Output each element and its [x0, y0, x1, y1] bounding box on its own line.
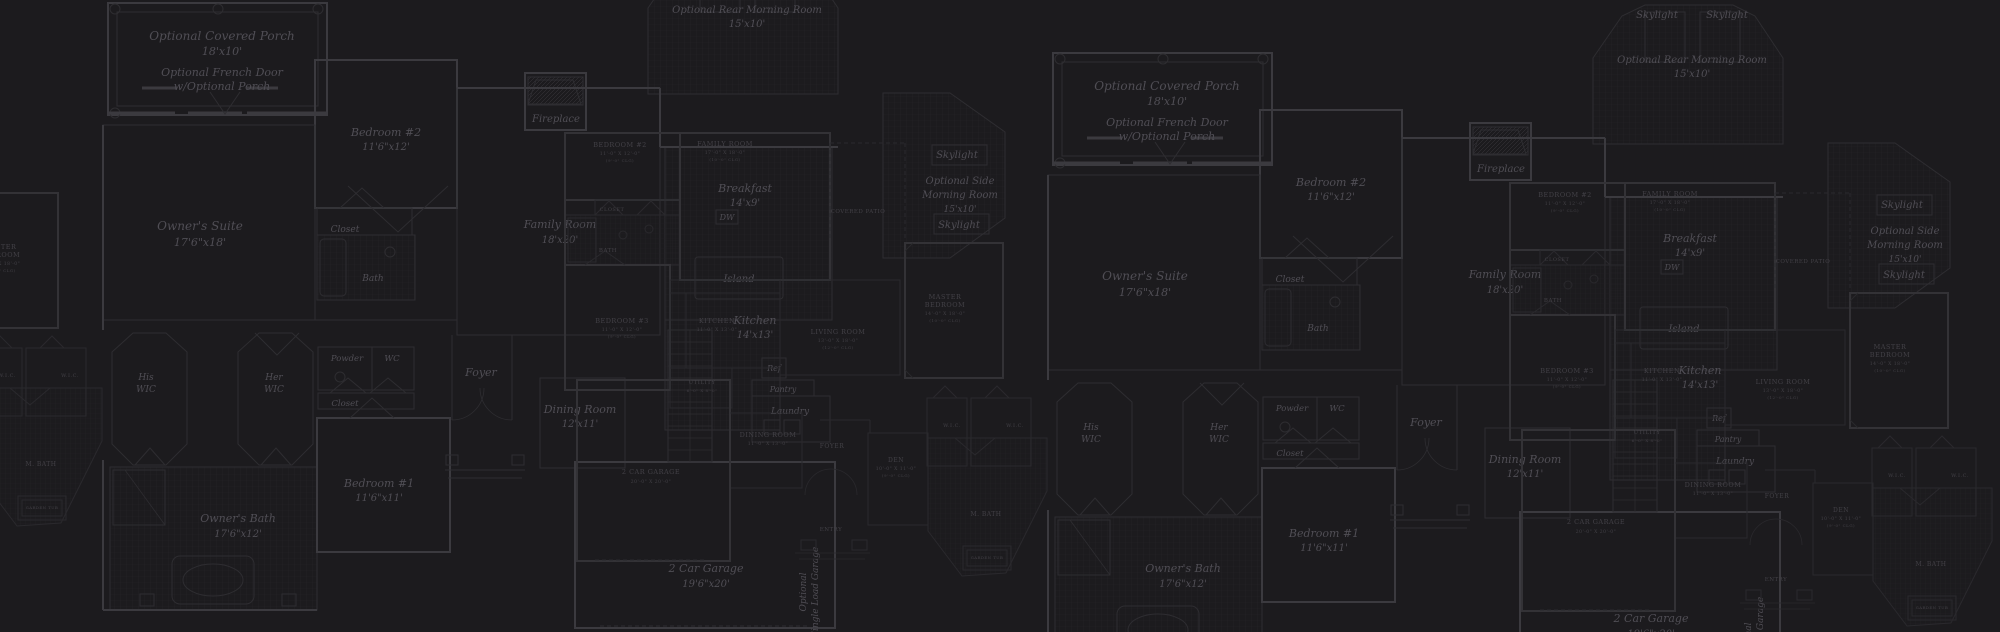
door-swing — [1285, 238, 1329, 258]
room-label-skylight: Skylight — [1883, 270, 1926, 281]
room-wall — [1797, 590, 1812, 600]
room-label-w-optional-porch: w/Optional Porch — [1119, 130, 1215, 143]
room-wall — [575, 462, 835, 628]
floorplan-b-left-edge: BEDROOM #211'-0" X 12'-0"(9'-0" CLG)FAMI… — [0, 83, 102, 526]
room-label-w-i-c: W.I.C. — [1888, 473, 1906, 479]
room-label-breakfast: Breakfast — [1662, 232, 1717, 245]
room-label-15-x10: 15'x10' — [1674, 69, 1711, 80]
room-label-m-bath: M. BATH — [25, 461, 56, 468]
door-swing — [1878, 436, 1902, 448]
room-label-20-0-x-20-0: 20'-0" X 20'-0" — [1576, 529, 1616, 535]
tiled-floor — [665, 147, 832, 320]
room-label-11-0-x-13-0: 11'-0" X 13'-0" — [1642, 377, 1682, 383]
room-label-fireplace: Fireplace — [1476, 164, 1525, 175]
room-label-14-x9: 14'x9' — [730, 198, 760, 209]
room-label-bedroom-2: BEDROOM #2 — [1538, 191, 1592, 199]
room-label-owner-s-suite: Owner's Suite — [157, 219, 243, 233]
room-label-master: MASTER — [0, 243, 17, 251]
room-label-family-room: FAMILY ROOM — [697, 140, 753, 148]
room-label-2-car-garage: 2 Car Garage — [668, 562, 744, 575]
room-label-bath: Bath — [1306, 324, 1328, 334]
door-swing — [1315, 428, 1351, 443]
room-label-garden-tub: GARDEN TUB — [971, 555, 1004, 560]
room-label-her: Her — [264, 373, 283, 383]
room-label-skylight: Skylight — [1706, 10, 1749, 21]
door-arc — [480, 388, 512, 420]
room-label-her: Her — [1209, 423, 1228, 433]
room-label-bath: Bath — [361, 274, 383, 284]
wall-line — [1850, 420, 1858, 428]
room-wall — [1473, 127, 1528, 155]
room-wall — [868, 433, 928, 525]
room-label-2-car-garage: 2 Car Garage — [1613, 612, 1689, 625]
room-label-11-0-x-13-0: 11'-0" X 13'-0" — [1693, 491, 1733, 497]
fixture — [110, 4, 120, 14]
room-label-wic: WIC — [264, 385, 284, 395]
room-label-laundry: Laundry — [1715, 457, 1755, 467]
room-wall — [528, 77, 583, 105]
room-wall — [1402, 138, 1605, 385]
room-label-optional-side: Optional Side — [926, 176, 995, 187]
door-arc — [452, 388, 484, 420]
room-label-9-0-clg: (9'-0" CLG) — [608, 334, 636, 339]
room-label-9-0-clg: (9'-0" CLG) — [1553, 384, 1581, 389]
room-label-dining-room: Dining Room — [1488, 453, 1562, 466]
room-label-optional-covered-porch: Optional Covered Porch — [149, 29, 295, 43]
room-label-bath: BATH — [1544, 298, 1562, 304]
floorplan-a-right: Optional Covered Porch18'x10'Optional Fr… — [1048, 5, 1950, 632]
room-label-12-0-clg: (12'-0" CLG) — [1767, 395, 1798, 400]
fixture — [1055, 54, 1065, 64]
door-swing — [1200, 383, 1244, 405]
room-label-15-x10: 15'x10' — [729, 19, 766, 30]
room-wall — [905, 243, 1003, 378]
room-label-optional-rear-morning-room: Optional Rear Morning Room — [672, 5, 822, 16]
room-label-9-0-clg: (9'-0" CLG) — [606, 158, 634, 163]
room-label-covered-patio: COVERED PATIO — [1776, 259, 1831, 265]
room-label-2-car-garage: 2 CAR GARAGE — [1567, 518, 1625, 526]
room-label-10-0-clg: (10'-0" CLG) — [709, 157, 740, 162]
room-label-14-0-x-18-0: 14'-0" X 18'-0" — [925, 311, 965, 317]
room-label-garden-tub: GARDEN TUB — [1916, 605, 1949, 610]
room-wall — [0, 193, 58, 328]
room-label-powder: Powder — [330, 354, 364, 364]
room-label-11-0-x-13-0: 11'-0" X 13'-0" — [697, 327, 737, 333]
room-label-2-car-garage: 2 CAR GARAGE — [622, 468, 680, 476]
room-label-dw: DW — [1664, 263, 1680, 272]
room-label-foyer: FOYER — [820, 443, 844, 450]
room-label-bedroom: BEDROOM — [925, 301, 965, 309]
tiled-floor — [1610, 197, 1777, 370]
room-label-w-i-c: W.I.C. — [1951, 473, 1969, 479]
room-wall — [1813, 483, 1873, 575]
room-label-bedroom-2: Bedroom #2 — [350, 126, 421, 139]
room-label-powder: Powder — [1275, 404, 1309, 414]
room-label-17-0-x-18-0: 17'-0" X 18'-0" — [705, 150, 745, 156]
room-label-w-i-c: W.I.C. — [943, 423, 961, 429]
room-label-kitchen: Kitchen — [733, 314, 777, 327]
room-label-11-0-x-12-0: 11'-0" X 12'-0" — [600, 151, 640, 157]
tiled-floor — [317, 235, 415, 300]
room-label-utility: UTILITY — [688, 380, 715, 386]
room-label-bedroom-2: Bedroom #2 — [1295, 176, 1366, 189]
room-label-optional-french-door: Optional French Door — [161, 66, 284, 79]
room-label-entry: ENTRY — [1765, 577, 1788, 583]
floorplan-a-left: Optional Covered Porch18'x10'Optional Fr… — [103, 0, 1005, 632]
room-label-laundry: Laundry — [770, 407, 810, 417]
room-label-foyer: Foyer — [1409, 416, 1442, 429]
room-label-master: MASTER — [1874, 343, 1907, 351]
room-label-15-x10: 15'x10' — [944, 205, 977, 215]
room-label-living-room: LIVING ROOM — [811, 328, 866, 336]
room-label-12-x11: 12'x11' — [1507, 469, 1544, 480]
room-label-bath: BATH — [599, 248, 617, 254]
fixture — [335, 372, 345, 382]
room-label-20-0-x-20-0: 20'-0" X 20'-0" — [631, 479, 671, 485]
room-label-9-0-clg: (9'-0" CLG) — [882, 473, 910, 478]
room-label-bedroom-3: BEDROOM #3 — [1540, 367, 1594, 375]
room-wall — [457, 88, 660, 335]
room-label-foyer: Foyer — [464, 366, 497, 379]
room-label-covered-patio: COVERED PATIO — [831, 209, 886, 215]
room-label-w-i-c: W.I.C. — [61, 373, 79, 379]
room-wall — [112, 333, 187, 465]
room-label-skylight: Skylight — [1636, 10, 1679, 21]
tiled-floor — [565, 215, 680, 265]
room-label-closet: CLOSET — [1545, 257, 1570, 263]
room-wall — [1057, 383, 1132, 515]
room-label-optional-covered-porch: Optional Covered Porch — [1094, 79, 1240, 93]
room-label-fireplace: Fireplace — [531, 114, 580, 125]
room-label-14-x13: 14'x13' — [737, 330, 774, 341]
room-label-family-room: FAMILY ROOM — [1642, 190, 1698, 198]
room-label-w-i-c: W.I.C. — [0, 373, 16, 379]
door-swing — [210, 92, 240, 114]
room-wall — [1391, 505, 1403, 515]
room-label-wc: WC — [1329, 404, 1345, 414]
room-label-dw: DW — [719, 213, 735, 222]
door-swing — [1582, 251, 1610, 265]
room-label-11-0-x-12-0: 11'-0" X 12'-0" — [1547, 377, 1587, 383]
room-label-bedroom-2: BEDROOM #2 — [593, 141, 647, 149]
room-label-10-0-x-11-0: 10'-0" X 11'-0" — [1821, 516, 1861, 522]
door-arc — [1397, 438, 1429, 470]
room-label-bedroom: BEDROOM — [1870, 351, 1910, 359]
room-wall — [1457, 505, 1469, 515]
room-label-12-x11: 12'x11' — [562, 419, 599, 430]
room-label-morning-room: Morning Room — [921, 190, 998, 201]
room-label-wic: WIC — [136, 385, 156, 395]
room-label-m-bath: M. BATH — [970, 511, 1001, 518]
room-label-owner-s-bath: Owner's Bath — [1145, 562, 1221, 575]
room-label-optional: Optional — [799, 572, 809, 611]
room-label-den: DEN — [1833, 507, 1849, 514]
room-label-11-0-x-13-0: 11'-0" X 13'-0" — [748, 441, 788, 447]
room-label-10-0-clg: (10'-0" CLG) — [929, 318, 960, 323]
room-label-dining-room: DINING ROOM — [740, 431, 797, 439]
room-label-optional-side: Optional Side — [1871, 226, 1940, 237]
room-label-wic: WIC — [1209, 435, 1229, 445]
room-wall — [108, 3, 327, 115]
door-swing — [340, 188, 384, 208]
door-swing — [985, 386, 1009, 398]
room-wall — [1850, 293, 1948, 428]
room-label-17-6-x12: 17'6"x12' — [1159, 579, 1207, 590]
room-label-skylight: Skylight — [1881, 200, 1924, 211]
room-label-kitchen: Kitchen — [1678, 364, 1722, 377]
room-label-11-6-x12: 11'6"x12' — [1307, 192, 1355, 203]
room-label-18-x10: 18'x10' — [202, 45, 242, 58]
room-label-living-room: LIVING ROOM — [1756, 378, 1811, 386]
room-label-17-6-x18: 17'6"x18' — [174, 236, 226, 249]
room-label-11-6-x12: 11'6"x12' — [362, 142, 410, 153]
door-swing — [370, 378, 406, 393]
door-swing — [1930, 436, 1954, 448]
room-label-bedroom: BEDROOM — [0, 251, 20, 259]
room-wall — [852, 540, 867, 550]
room-label-12-0-clg: (12'-0" CLG) — [822, 345, 853, 350]
room-label-11-0-x-12-0: 11'-0" X 12'-0" — [602, 327, 642, 333]
room-label-garden-tub: GARDEN TUB — [26, 505, 59, 510]
door-swing — [0, 336, 12, 348]
room-label-pantry: Pantry — [1714, 435, 1742, 444]
room-label-9-0-clg: (9'-0" CLG) — [1551, 208, 1579, 213]
room-label-bedroom-3: BEDROOM #3 — [595, 317, 649, 325]
floorplan-collage-background: Optional Covered Porch18'x10'Optional Fr… — [0, 0, 2000, 632]
room-label-13-0-x-18-0: 13'-0" X 18'-0" — [1763, 388, 1803, 394]
room-label-m-bath: M. BATH — [1915, 561, 1946, 568]
room-label-owner-s-bath: Owner's Bath — [200, 512, 276, 525]
door-swing — [1080, 498, 1110, 515]
room-label-single-load-garage: Single Load Garage — [811, 547, 821, 632]
room-label-his: His — [137, 373, 154, 383]
tiled-floor — [1262, 285, 1360, 350]
room-label-utility: UTILITY — [1633, 430, 1660, 436]
room-label-13-0-x-18-0: 13'-0" X 18'-0" — [818, 338, 858, 344]
room-label-14-x9: 14'x9' — [1675, 248, 1705, 259]
room-label-19-6-x20: 19'6"x20' — [682, 579, 730, 590]
room-label-optional: Optional — [1744, 622, 1754, 632]
room-label-closet: CLOSET — [600, 207, 625, 213]
room-label-6-0-x-8-0: 6'-0" X 8'-0" — [1632, 438, 1663, 443]
door-swing — [637, 201, 665, 215]
room-label-17-0-x-18-0: 17'-0" X 18'-0" — [1650, 200, 1690, 206]
door-swing — [255, 333, 299, 355]
room-label-9-0-clg: (9'-0" CLG) — [1827, 523, 1855, 528]
room-label-closet: Closet — [1276, 449, 1304, 459]
room-label-foyer: FOYER — [1765, 493, 1789, 500]
room-label-his: His — [1082, 423, 1099, 433]
room-label-kitchen: KITCHEN — [1644, 367, 1680, 375]
room-label-14-0-x-18-0: 14'-0" X 18'-0" — [1870, 361, 1910, 367]
room-label-pantry: Pantry — [769, 385, 797, 394]
room-label-14-0-x-18-0: 14'-0" X 18'-0" — [0, 261, 20, 267]
room-label-dining-room: Dining Room — [543, 403, 617, 416]
room-label-17-6-x18: 17'6"x18' — [1119, 286, 1171, 299]
door-arc — [1750, 519, 1776, 545]
room-label-10-0-clg: (10'-0" CLG) — [1654, 207, 1685, 212]
room-wall — [512, 455, 524, 465]
door-arc — [805, 469, 831, 495]
room-label-6-0-x-8-0: 6'-0" X 8'-0" — [687, 388, 718, 393]
room-label-bedroom-1: Bedroom #1 — [1288, 527, 1359, 540]
room-label-15-x10: 15'x10' — [1889, 255, 1922, 265]
room-label-w-i-c: W.I.C. — [1006, 423, 1024, 429]
room-label-single-load-garage: Single Load Garage — [1756, 597, 1766, 632]
room-label-11-6-x11: 11'6"x11' — [355, 493, 403, 504]
door-swing — [933, 386, 957, 398]
room-label-kitchen: KITCHEN — [699, 317, 735, 325]
room-label-master: MASTER — [929, 293, 962, 301]
room-label-closet: Closet — [331, 399, 359, 409]
room-label-18-x10: 18'x10' — [1147, 95, 1187, 108]
room-label-10-0-clg: (10'-0" CLG) — [1874, 368, 1905, 373]
room-label-10-0-clg: (10'-0" CLG) — [0, 268, 16, 273]
door-swing — [261, 448, 291, 465]
room-label-wc: WC — [384, 354, 400, 364]
room-label-skylight: Skylight — [936, 150, 979, 161]
room-label-14-x13: 14'x13' — [1682, 380, 1719, 391]
room-label-breakfast: Breakfast — [717, 182, 772, 195]
door-arc — [1425, 438, 1457, 470]
room-label-entry: ENTRY — [820, 527, 843, 533]
room-wall — [446, 455, 458, 465]
room-label-10-0-x-11-0: 10'-0" X 11'-0" — [876, 466, 916, 472]
door-swing — [1155, 142, 1185, 164]
room-wall — [1053, 53, 1272, 165]
fixture — [1280, 422, 1290, 432]
room-label-dining-room: DINING ROOM — [1685, 481, 1742, 489]
room-label-wic: WIC — [1081, 435, 1101, 445]
room-label-w-optional-porch: w/Optional Porch — [174, 80, 270, 93]
room-label-optional-french-door: Optional French Door — [1106, 116, 1229, 129]
room-label-optional-rear-morning-room: Optional Rear Morning Room — [1617, 55, 1767, 66]
room-label-skylight: Skylight — [938, 220, 981, 231]
room-label-owner-s-suite: Owner's Suite — [1102, 269, 1188, 283]
room-label-11-6-x11: 11'6"x11' — [1300, 543, 1348, 554]
door-swing — [40, 336, 64, 348]
room-label-bedroom-1: Bedroom #1 — [343, 477, 414, 490]
tiled-floor — [1510, 265, 1625, 315]
door-swing — [1206, 498, 1236, 515]
room-label-11-0-x-12-0: 11'-0" X 12'-0" — [1545, 201, 1585, 207]
room-label-closet: Closet — [1276, 275, 1305, 285]
floorplan-svg: Optional Covered Porch18'x10'Optional Fr… — [0, 0, 2000, 632]
wall-line — [905, 370, 913, 378]
room-label-den: DEN — [888, 457, 904, 464]
room-label-17-6-x12: 17'6"x12' — [214, 529, 262, 540]
room-label-morning-room: Morning Room — [1866, 240, 1943, 251]
room-label-closet: Closet — [331, 225, 360, 235]
door-swing — [1275, 428, 1311, 443]
door-swing — [330, 378, 366, 393]
door-swing — [135, 448, 165, 465]
